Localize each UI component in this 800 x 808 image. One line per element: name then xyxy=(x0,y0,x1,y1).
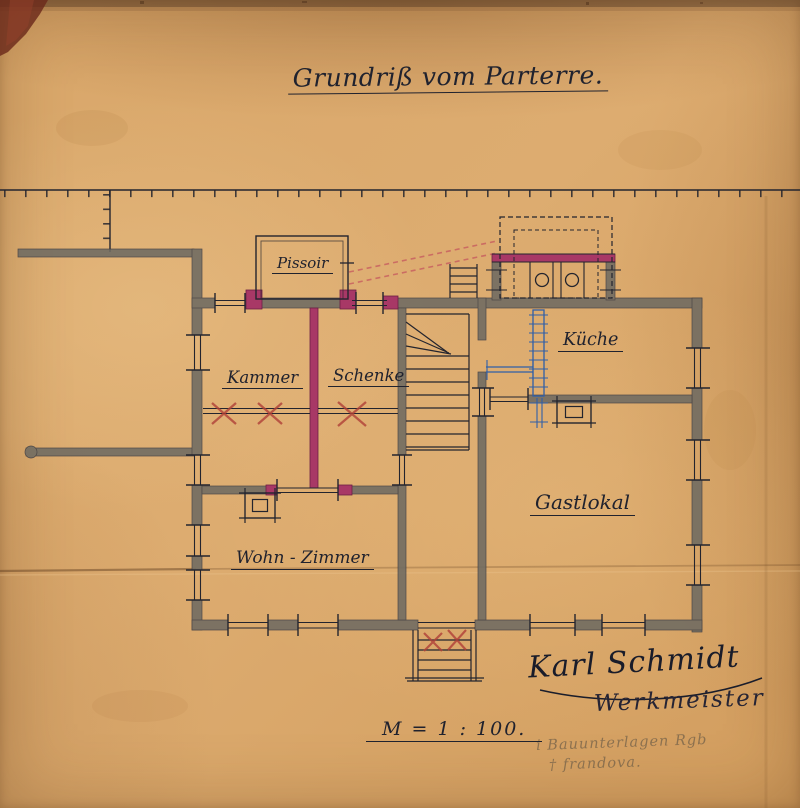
room-label-wohnzimmer: Wohn - Zimmer xyxy=(231,548,374,568)
demolition-wall-line xyxy=(203,409,398,414)
blue-new-wall xyxy=(486,310,548,428)
room-label-schenke: Schenke xyxy=(328,366,409,385)
scale-label: M = 1 : 100. xyxy=(366,718,542,740)
pencil-note-line-2: † frandova. xyxy=(549,754,642,773)
scanned-floor-plan-sheet: Grundriß vom Parterre. Pissoir Kammer Sc… xyxy=(0,0,800,808)
entrance-steps xyxy=(405,630,484,681)
room-label-kueche: Küche xyxy=(558,330,623,350)
red-dashed-guides xyxy=(349,241,497,284)
page-title-text: Grundriß vom Parterre. xyxy=(288,60,609,94)
room-label-pissoir: Pissoir xyxy=(272,254,333,272)
room-label-kammer: Kammer xyxy=(222,368,303,387)
room-label-gastlokal: Gastlokal xyxy=(530,490,635,514)
staircase xyxy=(406,314,469,450)
rear-steps xyxy=(450,264,477,298)
floor-plan-drawing xyxy=(0,0,800,808)
site-boundary-lines xyxy=(0,190,800,252)
chimney-kammer xyxy=(239,488,281,523)
chimney-kueche xyxy=(552,396,596,428)
window-door-openings xyxy=(186,292,710,636)
page-title: Grundriß vom Parterre. xyxy=(283,60,613,92)
